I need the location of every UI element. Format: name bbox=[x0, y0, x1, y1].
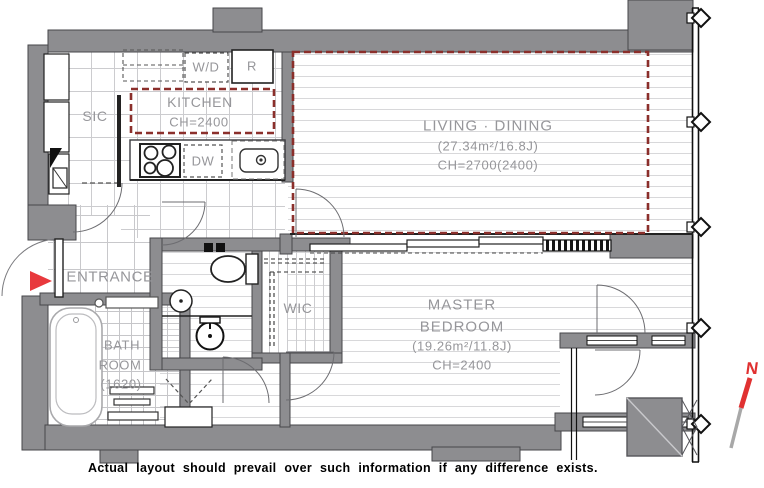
floor-plan: LIVING · DINING (27.34m²/16.8J) CH=2700(… bbox=[0, 0, 764, 488]
wic-label: WIC bbox=[283, 300, 312, 316]
entrance-label: ENTRANCE bbox=[66, 269, 153, 286]
floor-plan-drawing bbox=[0, 0, 764, 488]
kitchen-ceiling: CH=2400 bbox=[169, 115, 229, 130]
living-dining-label: LIVING · DINING bbox=[423, 118, 553, 135]
sic-label: SIC bbox=[82, 108, 107, 124]
disclaimer-text: Actual layout should prevail over such i… bbox=[88, 461, 708, 475]
compass-needle-icon bbox=[731, 378, 750, 448]
bathroom-size: (1620) bbox=[100, 377, 141, 392]
floor-drain bbox=[170, 290, 192, 312]
kitchen-label: KITCHEN bbox=[167, 94, 233, 110]
master-bedroom-label-2: BEDROOM bbox=[420, 319, 505, 336]
bathroom-label-1: BATH bbox=[104, 338, 140, 353]
corridor-storage-box bbox=[165, 407, 212, 427]
living-dining-area: (27.34m²/16.8J) bbox=[438, 139, 539, 154]
master-bedroom-ceiling: CH=2400 bbox=[432, 358, 492, 373]
master-bedroom-area: (19.26m²/11.8J) bbox=[412, 339, 512, 354]
living-dining-ceiling: CH=2700(2400) bbox=[438, 158, 539, 173]
washer-dryer-label: W/D bbox=[192, 60, 219, 75]
refrigerator-label: R bbox=[247, 59, 257, 74]
bathtub bbox=[50, 308, 102, 426]
washbasin bbox=[197, 317, 224, 350]
bathroom-label-2: ROOM bbox=[99, 358, 142, 373]
master-bedroom-label-1: MASTER bbox=[428, 297, 497, 314]
floors bbox=[42, 48, 693, 430]
sic-sliding-door bbox=[117, 95, 121, 187]
dishwasher-label: DW bbox=[192, 154, 215, 169]
